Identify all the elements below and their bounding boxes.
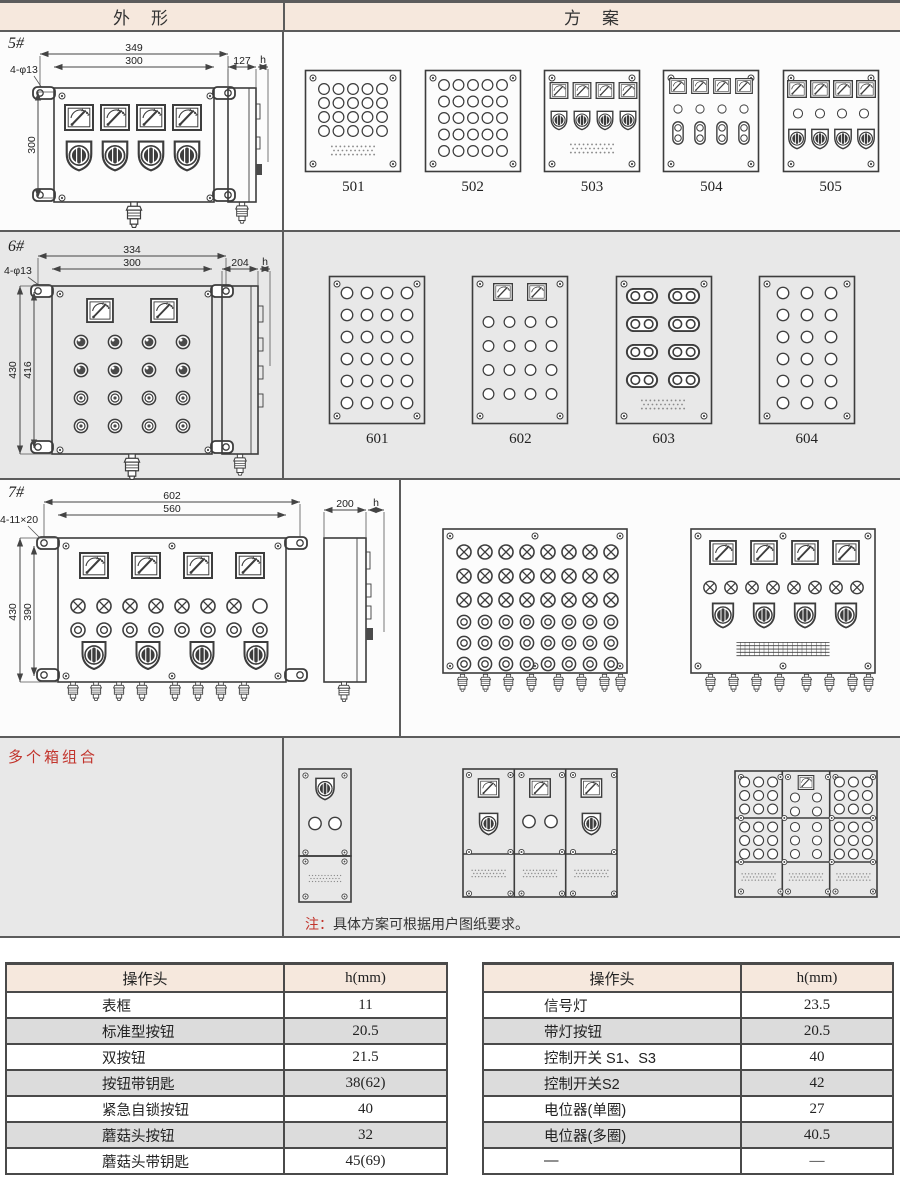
dim-label: 602 [163,490,181,502]
op-head-cell: — [484,1149,740,1173]
scheme-503: 503 [542,68,642,196]
table-row: 控制开关S242 [484,1071,892,1097]
scheme-504-drawing [661,68,761,174]
h-value-cell: 32 [283,1123,446,1147]
rotary-switch-icon [857,129,873,148]
scheme-number: 602 [509,431,532,448]
rotary-switch-icon [551,111,567,129]
meter-icon [619,83,637,99]
h-value-cell: 45(69) [283,1149,446,1173]
button-grid [777,287,837,409]
op-head-cell: 电位器(多圈) [484,1123,740,1147]
table-row: 紧急自锁按钮40 [7,1097,446,1123]
h-value-cell: 27 [740,1097,892,1121]
vent-grille [309,875,342,882]
scheme-501: 501 [303,68,403,196]
scheme-602-drawing [470,274,570,426]
footnote: 注：具体方案可根据用户图纸要求。 [305,914,529,934]
op-head-cell: 紧急自锁按钮 [7,1097,283,1121]
vent-grille [574,870,608,878]
s5-schemes: 501 502 503 [284,68,900,196]
footnote-prefix: 注： [305,916,333,932]
cable-gland-row [705,674,873,691]
scheme-504: 504 [661,68,761,196]
cable-gland-icon [338,682,350,702]
table-row: 按钮带钥匙38(62) [7,1071,446,1097]
dim-label: 300 [125,55,143,67]
h-value-cell: 20.5 [740,1019,892,1043]
cable-gland-icon [236,202,248,223]
vent-grille [736,642,829,655]
screw-icon [59,93,65,99]
dim-label: 204 [231,257,249,269]
button-grid [740,777,778,814]
meter-icon [87,299,113,322]
mounting-lug-icon [213,189,235,201]
cable-gland-icon [126,202,141,227]
meter-icon [810,81,829,98]
dim-label: 430 [7,603,19,621]
double-button-icon [695,122,705,144]
button-grid [341,287,413,409]
rotary-switch-row [83,642,268,669]
vent-grille [789,873,823,881]
mounting-lug-icon [213,87,235,99]
meter-icon [714,79,731,94]
h-value-cell: 40 [283,1097,446,1121]
button-grid [319,84,388,137]
h-value-cell: 38(62) [283,1071,446,1095]
meter-icon [101,105,129,130]
page-header-row: 外 形 方 案 [0,0,900,32]
dim-label: 4-φ13 [10,64,38,76]
cable-gland-row [457,674,625,691]
table-row: 表框11 [7,993,446,1019]
meter-icon [530,779,551,797]
meter-icon [478,779,499,797]
dim-label: h [260,54,266,66]
meter-icon [581,779,602,797]
scheme-number: 603 [652,431,675,448]
meter-icon [692,79,709,94]
s7-scheme-a-drawing [440,526,630,698]
vent-grille [836,873,870,881]
double-button-grid [626,289,698,387]
scheme-604: 604 [757,274,857,448]
scheme-601: 601 [327,274,427,448]
rotary-switch-row [67,142,200,171]
rotary-switch-icon [480,813,498,834]
scheme-number: 604 [796,431,819,448]
meter-icon [736,79,753,94]
op-head-cell: 双按钮 [7,1045,283,1069]
scheme-number: 502 [461,179,484,196]
table-row: 控制开关 S1、S340 [484,1045,892,1071]
meter-icon [173,105,201,130]
rotary-switch-icon [582,813,600,834]
vent-grille [471,870,505,878]
cable-gland-row [68,682,250,700]
scheme-number: 501 [342,179,365,196]
op-head-cell: 蘑菇头带钥匙 [7,1149,283,1173]
rotary-switch-icon [834,129,850,148]
scheme-number: 505 [819,179,842,196]
table-row: 电位器(单圈)27 [484,1097,892,1123]
scheme-603-drawing [614,274,714,426]
mounting-lug-icon [37,669,59,681]
scheme-505-drawing [781,68,881,174]
op-head-cell: 按钮带钥匙 [7,1071,283,1095]
table-row: 带灯按钮20.5 [484,1019,892,1045]
section-7: 7# 602 560 4-11×20 430 390 [0,480,900,738]
button-grid [834,777,872,814]
dim-label: 127 [233,55,251,67]
table-row: 标准型按钮20.5 [7,1019,446,1045]
h-value-cell: 40 [740,1045,892,1069]
scheme-501-drawing [303,68,403,174]
dim-label: 560 [163,503,181,515]
double-button-icon [673,122,683,144]
mounting-lug-icon [37,537,59,549]
s5-front-view-drawing: 349 300 4-φ13 300 127 h [8,42,270,230]
meter-icon [65,105,93,130]
scheme-604-drawing [757,274,857,426]
s6-front-view-drawing: 334 300 4-φ13 430 416 204 h [4,246,276,480]
meter-icon [856,81,875,98]
tables-area: 操作头 h(mm) 表框11 标准型按钮20.5 双按钮21.5 按钮带钥匙38… [0,938,900,1180]
meter-icon [151,299,177,322]
h-value-cell: — [740,1149,892,1173]
dim-label: 416 [22,361,34,379]
scheme-503-drawing [542,68,642,174]
screw-icon [207,195,213,201]
button-grid [457,615,617,670]
h-value-cell: 23.5 [740,993,892,1017]
vent-grille [570,144,614,154]
table-row: 双按钮21.5 [7,1045,446,1071]
meter-icon [137,105,165,130]
op-head-cell: 标准型按钮 [7,1019,283,1043]
scheme-number: 504 [700,179,723,196]
dim-label: 334 [123,244,141,256]
op-head-cell: 表框 [7,993,283,1017]
column-header-operation-head: 操作头 [484,965,740,991]
op-head-cell: 电位器(单圈) [484,1097,740,1121]
op-head-cell: 控制开关S2 [484,1071,740,1095]
table-header-row: 操作头 h(mm) [7,962,446,993]
s7-scheme-b-drawing [688,526,878,698]
header-outline: 外 形 [0,3,283,30]
mounting-lug-icon [285,537,307,549]
op-head-cell: 信号灯 [484,993,740,1017]
mounting-lug-icon [33,87,55,99]
rotary-switch-icon [175,142,200,171]
rotary-switch-icon [811,129,827,148]
dim-label: 4-φ13 [4,265,32,277]
screw-icon [207,93,213,99]
column-header-h-mm: h(mm) [740,965,892,991]
operation-head-table-right: 操作头 h(mm) 信号灯23.5 带灯按钮20.5 控制开关 S1、S340 … [482,962,894,1175]
op-head-cell: 控制开关 S1、S3 [484,1045,740,1069]
meter-icon [494,284,513,301]
footnote-text: 具体方案可根据用户图纸要求。 [333,916,529,932]
rotary-switch-icon [139,142,164,171]
double-button-icon [717,122,727,144]
meter-icon [833,81,852,98]
vent-grille [741,873,775,881]
dim-label: 390 [22,603,34,621]
column-divider [282,738,284,936]
column-divider [399,480,401,736]
h-value-cell: 40.5 [740,1123,892,1147]
dim-label: 349 [125,42,143,54]
column-header-h-mm: h(mm) [283,965,446,991]
op-head-cell: 带灯按钮 [484,1019,740,1043]
meter-icon [798,776,814,790]
s6-schemes: 601 602 [284,274,900,448]
meter-icon [596,83,614,99]
mounting-lug-icon [285,669,307,681]
cable-gland-icon [124,454,139,479]
rotary-switch-icon [574,111,590,129]
combo-three-box-drawing [460,766,620,900]
rotary-switch-icon [788,129,804,148]
button-grid [438,80,507,157]
scheme-603: 603 [614,274,714,448]
button-grid [74,335,189,432]
section-6: 6# 334 300 4-φ13 430 416 204 h [0,232,900,480]
lamp-row [704,581,863,593]
rotary-switch-row [713,603,857,627]
screw-icon [59,195,65,201]
scheme-601-drawing [327,274,427,426]
table-row: 电位器(多圈)40.5 [484,1123,892,1149]
table-row: —— [484,1149,892,1175]
scheme-number: 503 [581,179,604,196]
button-grid [484,317,558,400]
vent-grille [331,146,375,156]
lamp-grid [457,545,618,607]
s7-front-view-drawing: 602 560 4-11×20 430 390 [0,490,398,734]
meter-icon [670,79,687,94]
combination-label: 多个箱组合 [8,746,98,767]
meter-row [710,541,859,564]
operation-head-table-left: 操作头 h(mm) 表框11 标准型按钮20.5 双按钮21.5 按钮带钥匙38… [5,962,448,1175]
h-value-cell: 11 [283,993,446,1017]
h-value-cell: 42 [740,1071,892,1095]
h-value-cell: 21.5 [283,1045,446,1069]
vent-grille [641,400,685,410]
double-button-icon [739,122,749,144]
meter-icon [550,83,568,99]
scheme-602: 602 [470,274,570,448]
scheme-number: 601 [366,431,389,448]
dim-label: 4-11×20 [0,514,38,526]
meter-row [65,105,201,130]
rotary-switch-icon [67,142,92,171]
scheme-502-drawing [423,68,523,174]
rotary-switch-icon [597,111,613,129]
combo-two-box-drawing [296,766,354,906]
table-row: 蘑菇头带钥匙45(69) [7,1149,446,1175]
meter-icon [787,81,806,98]
scheme-502: 502 [423,68,523,196]
dim-label: 300 [123,257,141,269]
section-5: 5# 349 300 4-φ13 300 127 h [0,32,900,232]
meter-row [80,553,264,578]
rotary-switch-icon [316,778,334,799]
mounting-lug-icon [33,189,55,201]
section-combination: 多个箱组合 [0,738,900,938]
dim-label: h [262,256,268,268]
rotary-switch-icon [103,142,128,171]
rotary-switch-icon [620,111,636,129]
meter-icon [573,83,591,99]
button-grid [740,822,873,859]
table-header-row: 操作头 h(mm) [484,962,892,993]
h-value-cell: 20.5 [283,1019,446,1043]
dim-label: 430 [7,361,19,379]
header-scheme: 方 案 [283,3,900,30]
cable-gland-icon [234,454,246,475]
dim-label: h [373,497,379,509]
dim-label: 300 [26,136,38,154]
column-header-operation-head: 操作头 [7,965,283,991]
table-row: 蘑菇头按钮32 [7,1123,446,1149]
meter-icon [528,284,547,301]
op-head-cell: 蘑菇头按钮 [7,1123,283,1147]
button-row [71,623,267,637]
scheme-505: 505 [781,68,881,196]
vent-grille [523,870,557,878]
combo-grid-box-drawing [732,768,880,900]
table-row: 信号灯23.5 [484,993,892,1019]
lamp-row [71,599,267,613]
dim-label: 200 [336,498,354,510]
